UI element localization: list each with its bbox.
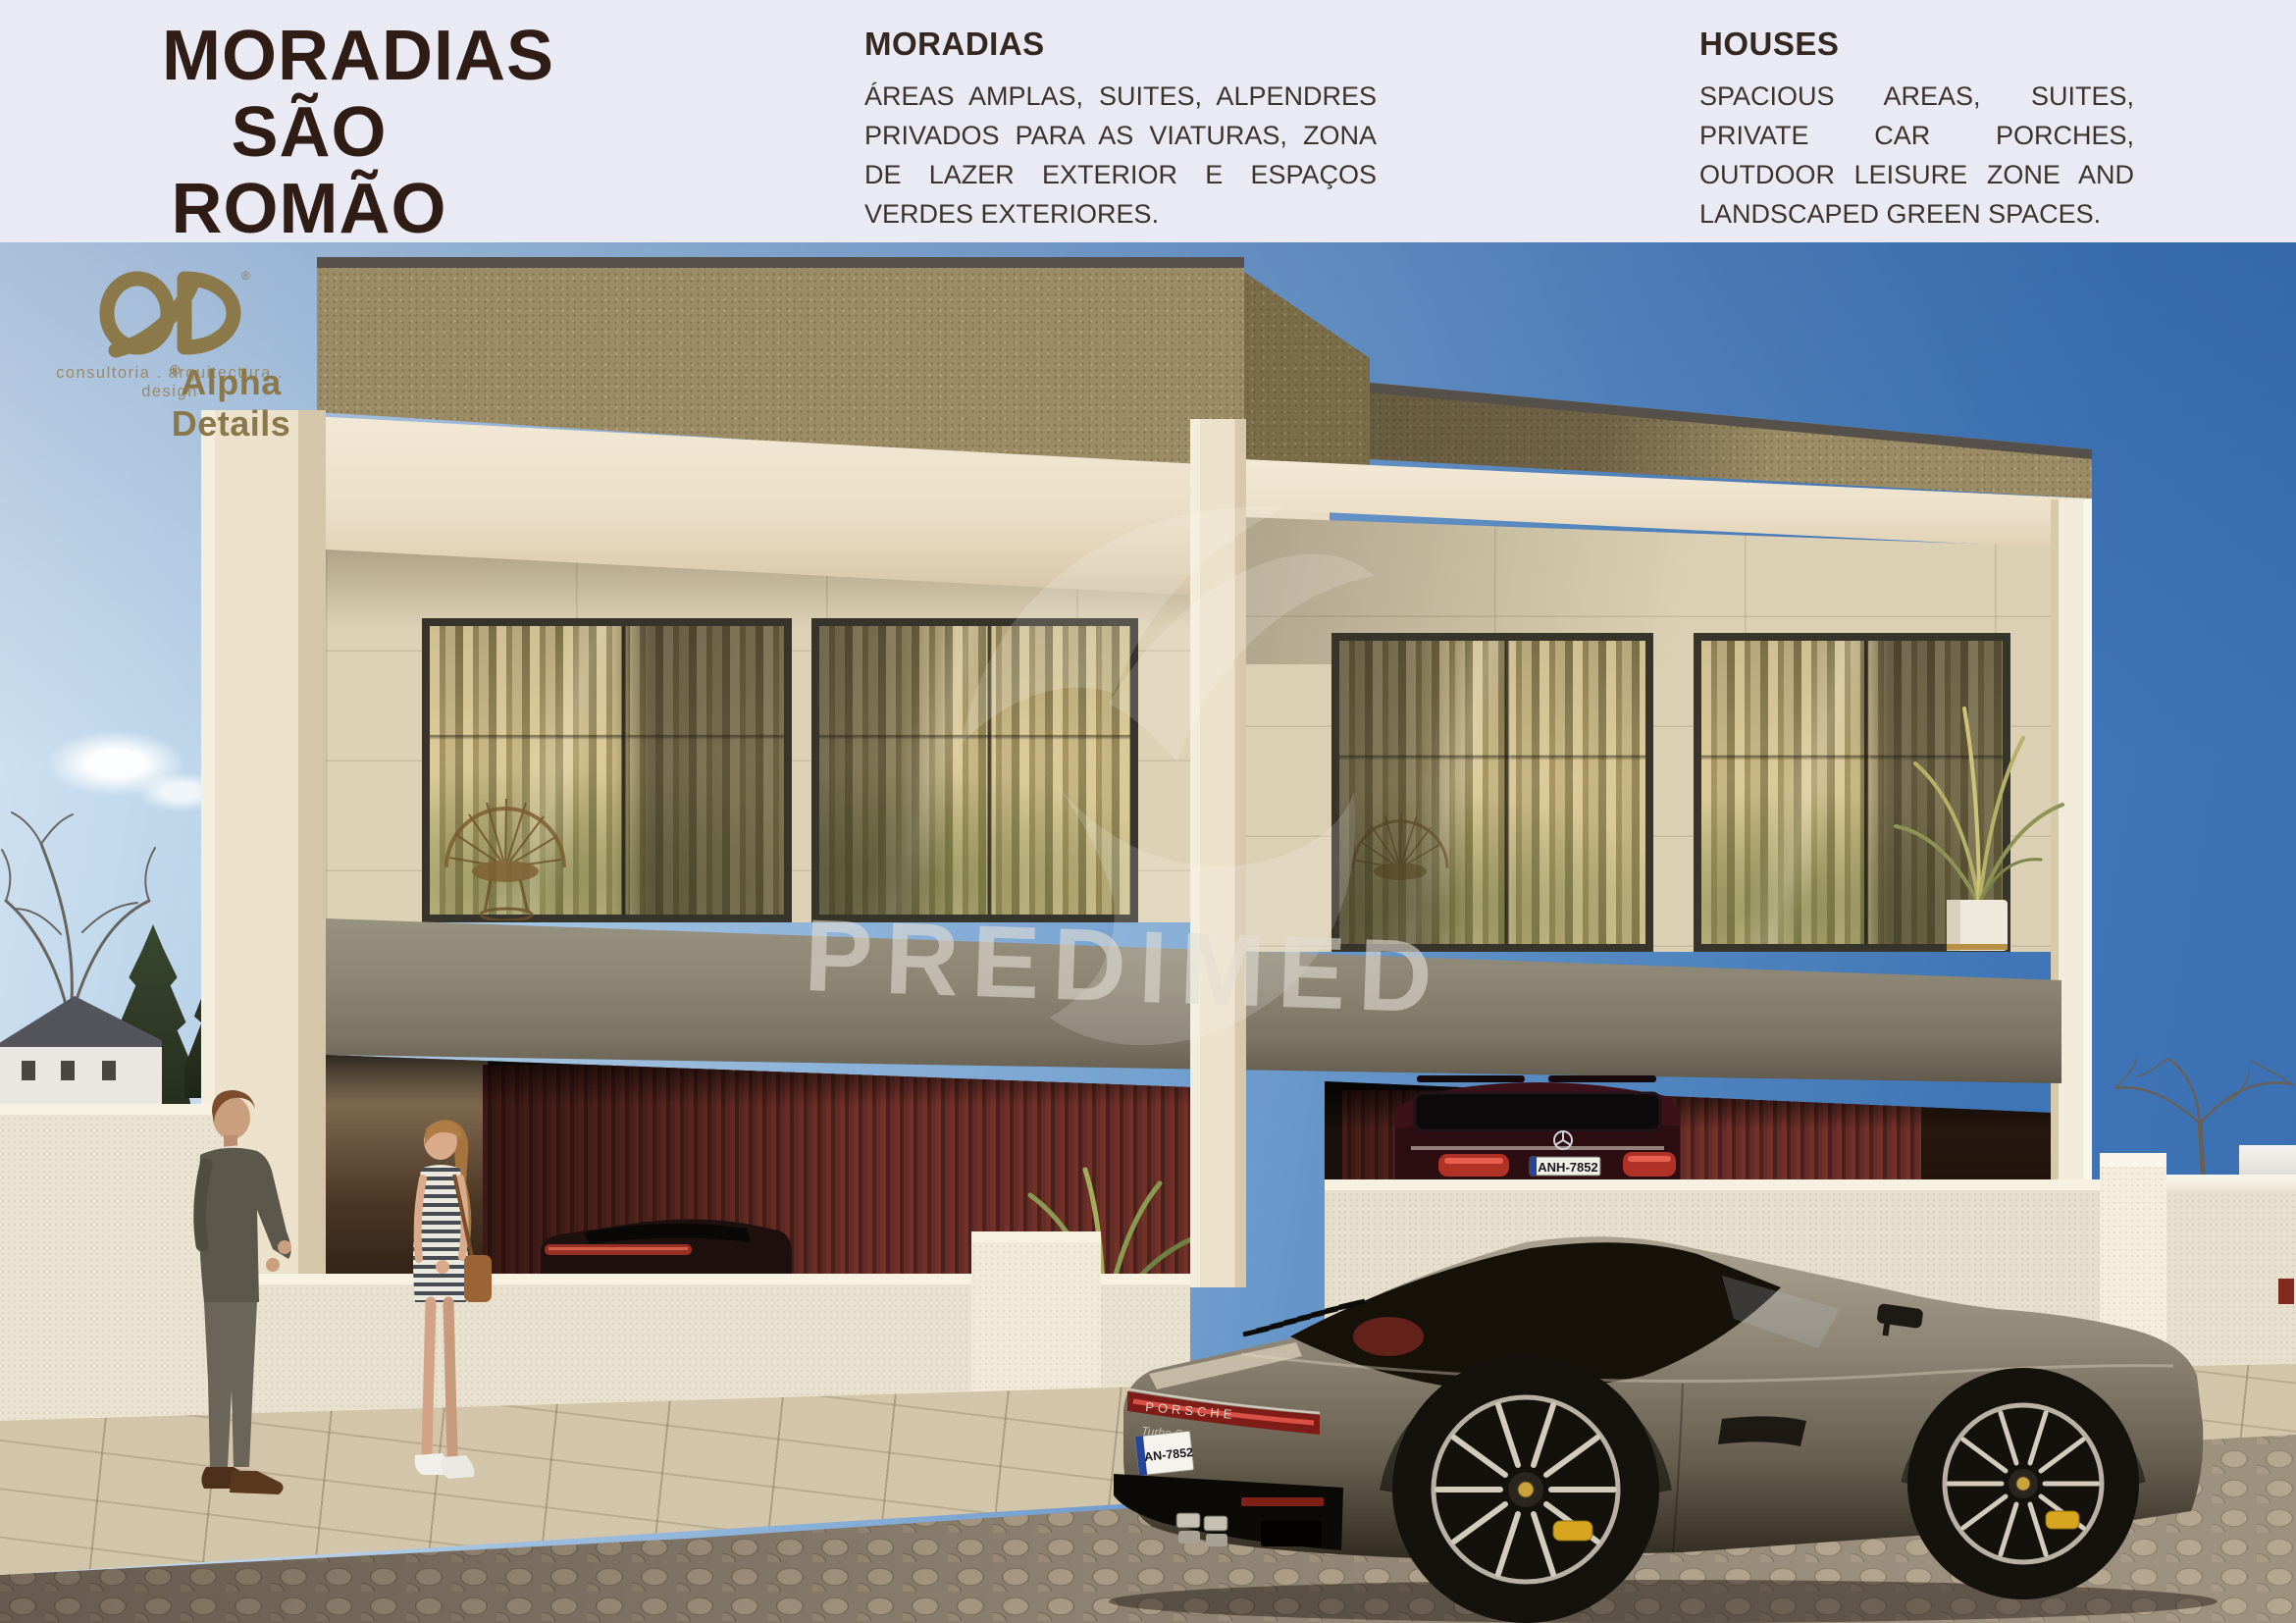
agency-logo: ® Alpha Details® consultoria . arquitect… <box>47 264 292 401</box>
pt-body: ÁREAS AMPLAS, SUITES, ALPENDRES PRIVADOS… <box>864 77 1377 234</box>
title-line-2: SÃO <box>162 94 456 171</box>
neighbor-roof <box>0 996 162 1053</box>
registered-mark: ® <box>241 269 250 283</box>
side-intake <box>1718 1416 1806 1446</box>
render-scene: ANH-7852 PREDIMED <box>0 242 2296 1623</box>
registered-mark: ® <box>170 362 181 378</box>
en-body: SPACIOUS AREAS, SUITES, PRIVATE CAR PORC… <box>1699 77 2134 234</box>
fence-cap <box>2166 1175 2296 1190</box>
neighbor-window <box>102 1061 116 1080</box>
front-wheel <box>1907 1368 2139 1599</box>
en-heading: HOUSES <box>1699 26 2134 63</box>
flyer-canvas: MORADIAS SÃO ROMÃO MORADIAS ÁREAS AMPLAS… <box>0 0 2296 1623</box>
fence-cap <box>1325 1179 2100 1190</box>
porsche-car: PORSCHE Turbo S AN-7852 <box>1094 1227 2222 1623</box>
mercedes-suv: ANH-7852 <box>1382 1070 1694 1197</box>
fence-cap <box>2100 1153 2166 1167</box>
predimed-watermark-text: PREDIMED <box>803 898 1447 1037</box>
man-figure <box>147 1084 314 1516</box>
palm-plant-right <box>1886 679 2072 959</box>
neighbor-window <box>22 1061 35 1080</box>
parapet-cap <box>317 257 1244 268</box>
description-portuguese: MORADIAS ÁREAS AMPLAS, SUITES, ALPENDRES… <box>864 26 1377 234</box>
alpha-details-logo-icon: ® <box>86 264 253 362</box>
suv-license-plate: ANH-7852 <box>1538 1160 1597 1175</box>
header-bar: MORADIAS SÃO ROMÃO MORADIAS ÁREAS AMPLAS… <box>0 0 2296 242</box>
red-post <box>2278 1279 2294 1304</box>
woman-figure <box>386 1110 508 1502</box>
wicker-chair-reflection <box>442 773 569 920</box>
fence-cap <box>971 1231 1101 1242</box>
rear-license-plate: AN-7852 <box>1135 1431 1195 1476</box>
window-left-a <box>422 618 792 922</box>
neighbor-house-left <box>0 996 162 1112</box>
neighbor-window <box>61 1061 75 1080</box>
description-english: HOUSES SPACIOUS AREAS, SUITES, PRIVATE C… <box>1699 26 2134 234</box>
title-line-3: ROMÃO <box>162 171 456 247</box>
pt-heading: MORADIAS <box>864 26 1377 63</box>
red-seats <box>1353 1317 1424 1356</box>
project-title: MORADIAS SÃO ROMÃO <box>162 18 456 247</box>
title-line-1: MORADIAS <box>162 18 456 94</box>
